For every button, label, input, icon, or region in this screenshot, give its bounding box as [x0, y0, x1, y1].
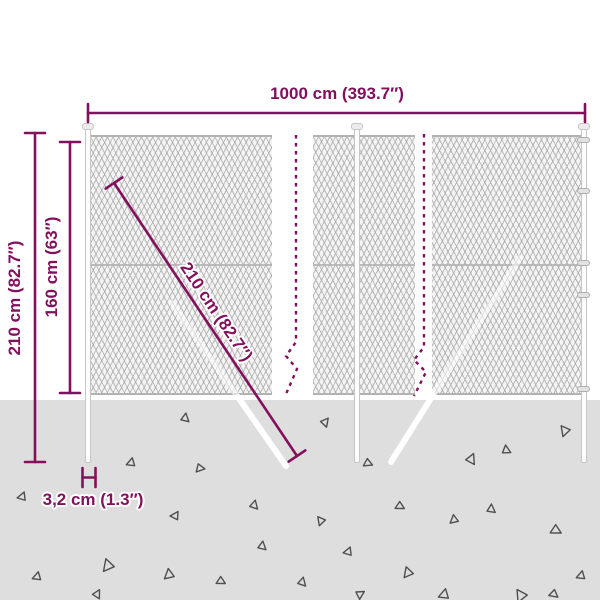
dimension-diagonal: [106, 177, 306, 461]
break-line-right: [414, 134, 426, 396]
post-width-label: 3,2 cm (1.3″): [43, 490, 144, 510]
dimension-mesh-height: [60, 142, 80, 393]
dimension-width: [88, 104, 585, 122]
post-width-marker: [83, 468, 96, 487]
total-height-label: 210 cm (82.7″): [5, 241, 25, 356]
width-label: 1000 cm (393.7″): [270, 84, 404, 104]
break-line-left: [286, 135, 297, 394]
diagonal-brace-right: [391, 258, 520, 462]
fence-dimension-diagram: 1000 cm (393.7″) 210 cm (82.7″) 160 cm (…: [0, 0, 600, 600]
mesh-height-label: 160 cm (63″): [42, 217, 62, 318]
